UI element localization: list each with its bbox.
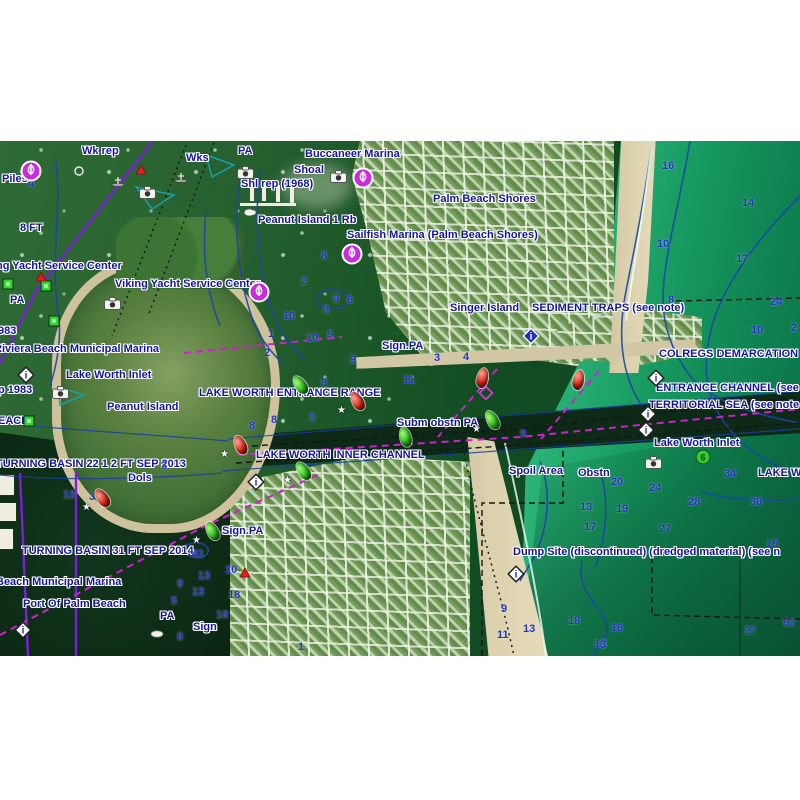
- buoy-body: [293, 460, 313, 483]
- buoy-station-star: ★: [192, 535, 201, 546]
- buoy-body: [348, 390, 368, 413]
- buoy-station-star: ★: [472, 424, 481, 435]
- buoy-station-star: ★: [283, 475, 292, 486]
- chartplotter-screenshot: Wk repPilesWksPAShoalShl rep (1968)Bucca…: [0, 0, 800, 800]
- buoy-body: [290, 374, 310, 397]
- buoy-body: [92, 487, 112, 510]
- buoy-body: [571, 369, 586, 391]
- buoy-station-star: ★: [220, 449, 229, 460]
- buoy-body: [231, 434, 249, 457]
- buoy-body: [203, 520, 223, 543]
- buoys-layer: ★★★★★★: [0, 141, 800, 656]
- buoy-body: [398, 426, 414, 448]
- buoy-station-star: ★: [82, 502, 91, 513]
- marine-chart-map[interactable]: Wk repPilesWksPAShoalShl rep (1968)Bucca…: [0, 141, 800, 656]
- buoy-station-star: ★: [337, 405, 346, 416]
- buoy-body: [475, 367, 490, 389]
- buoy-body: [483, 409, 503, 432]
